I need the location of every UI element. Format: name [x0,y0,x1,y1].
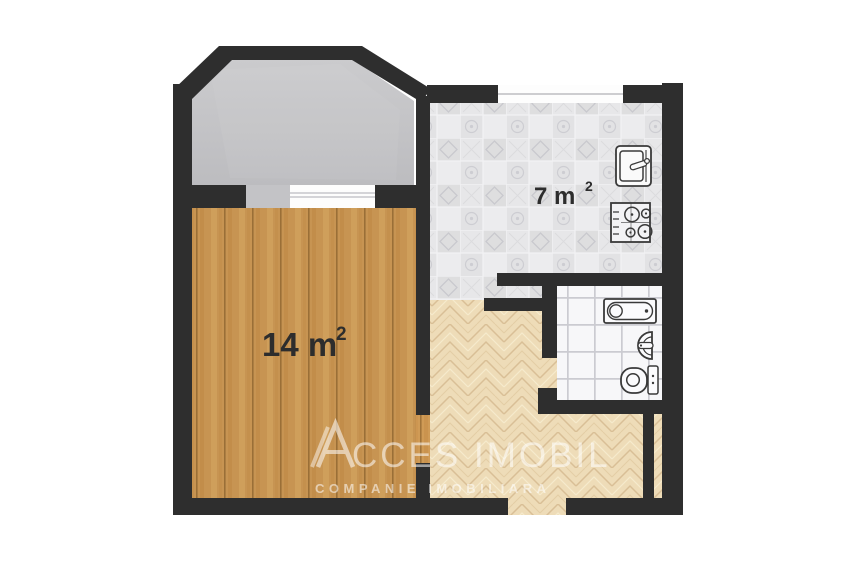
stove-icon [611,203,652,242]
kitchen-sink-icon [616,146,651,186]
entrance-door-opening [508,498,566,515]
kitchen-area-sup: 2 [585,178,593,194]
floor-plan: 14 m 2 7 m 2 CCES IMOBIL COMPANIE IMOBIL… [0,0,854,570]
toilet-icon [621,366,658,394]
bathtub-icon [604,299,656,323]
kitchen-window [498,85,623,103]
watermark-brand-text: CCES IMOBIL [352,436,611,475]
kitchen-area-label: 7 m [534,183,575,210]
bathroom-door-opening [542,358,557,390]
balcony-window [290,185,375,208]
watermark-subtitle: COMPANIE IMOBILIARA [315,481,550,496]
living-room-area-label: 14 m [262,326,337,363]
living-room-area-sup: 2 [336,324,347,345]
balcony-door-opening [246,185,290,208]
floor-plan-page: 14 m 2 7 m 2 CCES IMOBIL COMPANIE IMOBIL… [0,0,854,570]
